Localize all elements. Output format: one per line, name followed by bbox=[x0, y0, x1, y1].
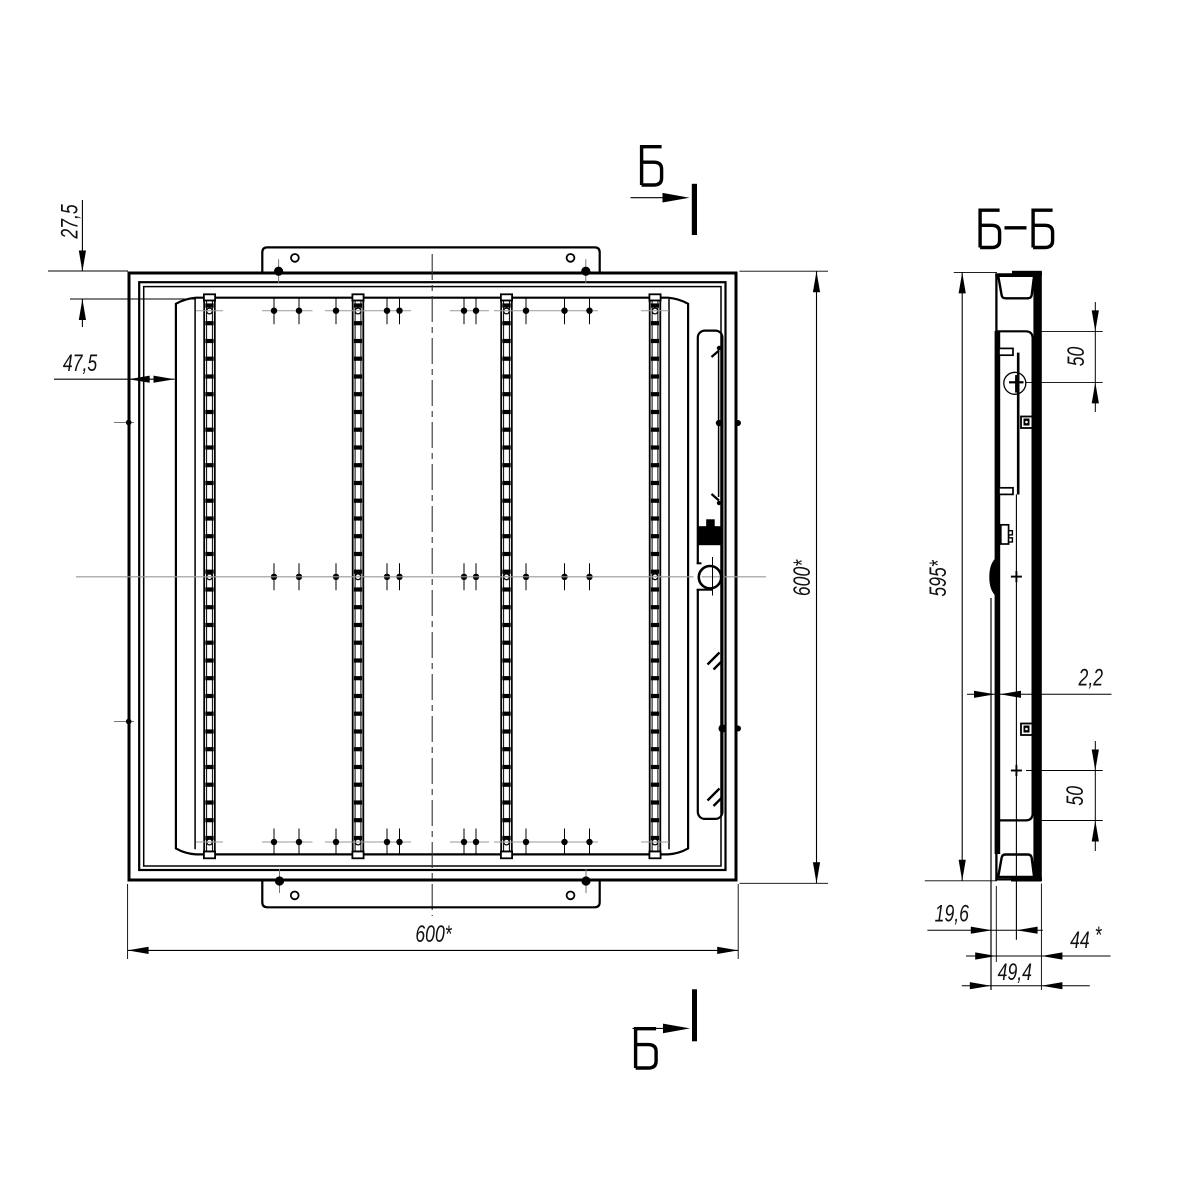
svg-text:2,2: 2,2 bbox=[1078, 664, 1103, 692]
svg-text:19,6: 19,6 bbox=[935, 900, 969, 928]
svg-text:600*: 600* bbox=[415, 920, 452, 948]
svg-text:600*: 600* bbox=[788, 559, 816, 596]
svg-text:595*: 595* bbox=[924, 560, 952, 597]
svg-text:49,4: 49,4 bbox=[998, 958, 1032, 986]
svg-text:27,5: 27,5 bbox=[56, 204, 84, 239]
svg-text:50: 50 bbox=[1062, 347, 1090, 367]
svg-text:50: 50 bbox=[1061, 786, 1089, 806]
svg-text:47,5: 47,5 bbox=[63, 349, 97, 377]
